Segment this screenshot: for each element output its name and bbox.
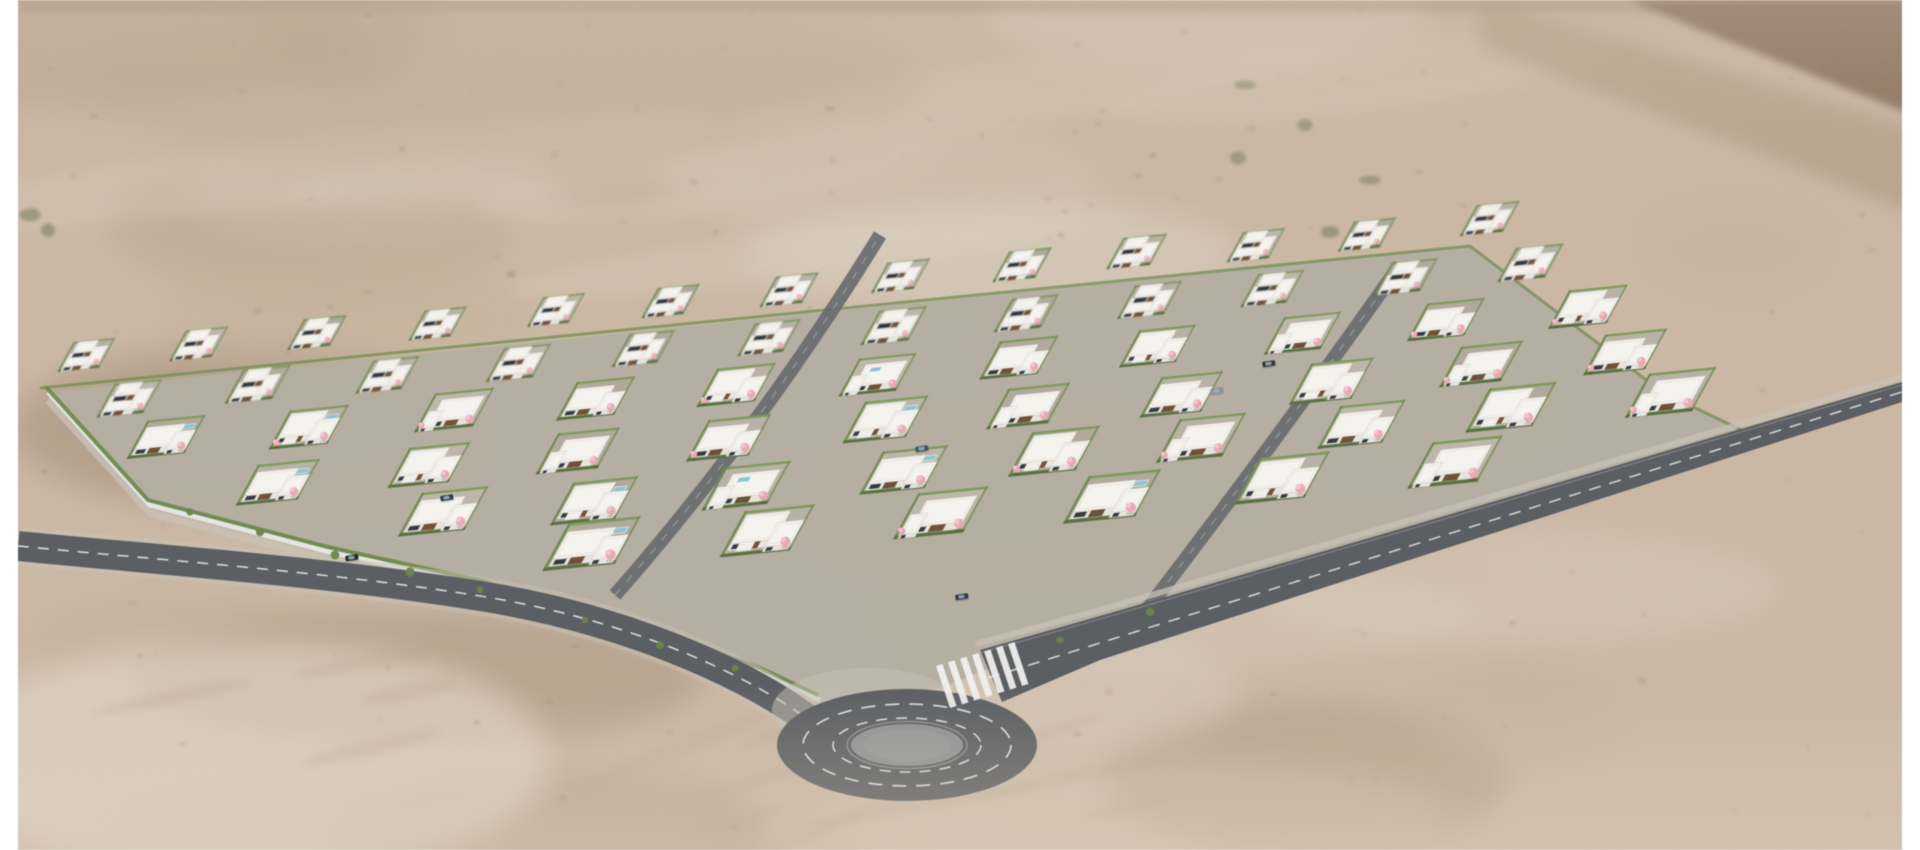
pink-tree: [1168, 351, 1176, 361]
pink-tree: [1599, 312, 1607, 323]
pink-tree: [1126, 502, 1136, 515]
pink-tree: [273, 439, 279, 449]
page-border-right: [1902, 0, 1920, 850]
blur-band-top: [18, 0, 1902, 230]
pink-tree: [607, 403, 615, 413]
pink-tree: [1683, 398, 1692, 410]
pink-tree: [908, 280, 914, 288]
pink-tree: [266, 389, 272, 398]
pink-tree: [747, 390, 755, 400]
pink-tree: [897, 425, 906, 436]
pink-tree: [1034, 318, 1040, 327]
pink-tree: [445, 327, 451, 335]
pink-tree: [954, 519, 964, 532]
pink-tree: [796, 294, 802, 302]
pink-tree: [1030, 362, 1038, 372]
pink-tree: [177, 442, 185, 452]
pink-tree: [1013, 465, 1020, 476]
pink-tree: [1161, 452, 1168, 463]
pink-tree: [605, 549, 615, 562]
pink-tree: [1295, 484, 1305, 497]
pink-tree: [1313, 338, 1321, 348]
render-canvas: [0, 0, 1920, 850]
pink-tree: [93, 359, 99, 367]
pink-tree: [590, 456, 599, 467]
pink-tree: [320, 432, 328, 443]
pink-tree: [916, 475, 925, 487]
green-shrub: [1057, 637, 1064, 644]
pink-tree: [137, 403, 143, 412]
pink-tree: [1343, 386, 1352, 397]
pink-tree: [777, 342, 783, 351]
pink-tree: [1040, 411, 1049, 422]
pink-tree: [898, 528, 905, 539]
pink-tree: [1457, 324, 1465, 334]
pink-tree: [1538, 267, 1544, 276]
green-shrub: [732, 665, 739, 672]
page-border-left: [0, 0, 18, 850]
pink-tree: [759, 491, 768, 503]
pink-tree: [1263, 249, 1269, 257]
pink-tree: [1468, 468, 1478, 481]
green-shrub: [186, 508, 193, 515]
green-shrub: [331, 551, 340, 560]
pink-tree: [781, 537, 791, 550]
pink-tree: [651, 353, 657, 362]
pink-tree: [741, 443, 750, 454]
pink-tree: [456, 517, 465, 529]
pink-tree: [418, 422, 424, 432]
pink-tree: [441, 470, 450, 481]
pink-tree: [1144, 256, 1150, 264]
pink-tree: [1411, 332, 1417, 341]
pink-tree: [888, 379, 896, 389]
pink-tree: [902, 330, 908, 339]
pink-tree: [206, 348, 212, 356]
pink-tree: [1280, 293, 1286, 302]
pink-tree: [1552, 319, 1558, 329]
pink-tree: [678, 305, 684, 313]
green-shrub: [256, 528, 264, 536]
green-shrub: [582, 617, 589, 624]
pink-tree: [1214, 443, 1223, 455]
pink-tree: [1444, 377, 1451, 387]
green-shrub: [405, 567, 414, 576]
pink-tree: [1193, 399, 1202, 410]
pink-tree: [1493, 369, 1502, 380]
pink-tree: [563, 314, 569, 322]
pink-tree: [526, 367, 532, 376]
pink-tree: [701, 397, 707, 406]
blur-band-bottom: [18, 680, 1902, 850]
pink-tree: [1029, 269, 1035, 277]
green-shrub: [656, 641, 664, 649]
pink-tree: [1588, 365, 1595, 375]
pink-tree: [1524, 413, 1533, 425]
pink-tree: [1067, 457, 1077, 469]
pink-tree: [1374, 238, 1380, 246]
pink-tree: [691, 451, 698, 461]
green-shrub: [1146, 608, 1154, 616]
pink-tree: [1414, 281, 1420, 290]
pink-tree: [606, 506, 615, 518]
pink-tree: [1630, 407, 1637, 418]
green-shrub: [477, 587, 484, 594]
pink-tree: [1374, 430, 1383, 442]
pink-tree: [1157, 304, 1163, 313]
pink-tree: [465, 415, 473, 426]
pink-tree: [290, 487, 299, 498]
pink-tree: [324, 336, 330, 344]
pink-tree: [1637, 357, 1646, 368]
architectural-render: [0, 0, 1920, 850]
pink-tree: [395, 379, 401, 388]
